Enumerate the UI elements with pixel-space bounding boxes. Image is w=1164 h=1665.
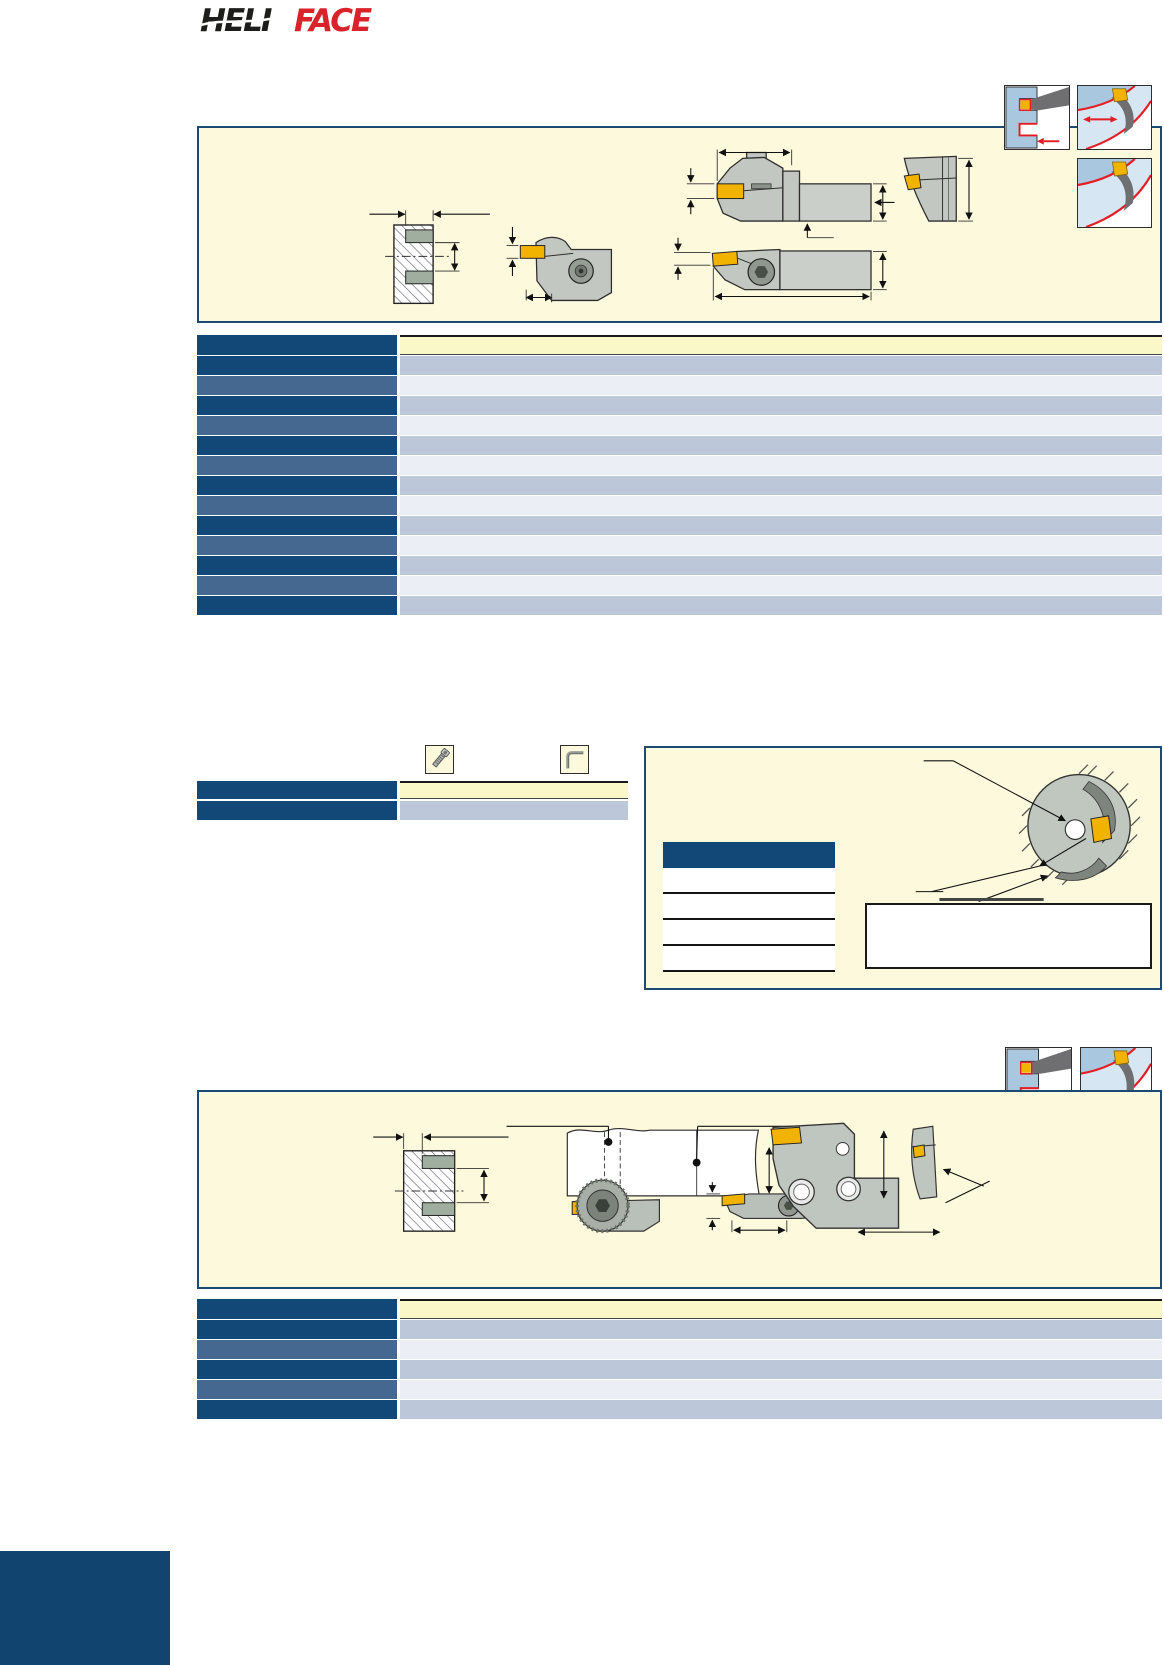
hex-key-icon xyxy=(560,745,589,774)
table-row xyxy=(197,1380,1162,1399)
cutting-data-table xyxy=(663,842,835,972)
annotation-box xyxy=(865,903,1152,969)
row-label-cell xyxy=(197,456,397,475)
table-row xyxy=(197,801,628,820)
footer-page-tab xyxy=(0,1551,170,1665)
row-value-cell xyxy=(400,476,1162,495)
face-groove-cross-section-icon xyxy=(1004,85,1070,150)
main-table-header-value-cell xyxy=(400,335,1162,355)
table-row xyxy=(197,436,1162,455)
row-value-cell xyxy=(400,1340,1162,1359)
table-row xyxy=(197,456,1162,475)
callout-dot xyxy=(693,1159,701,1167)
row-value-cell xyxy=(400,1380,1162,1399)
table-row xyxy=(197,536,1162,555)
row-value-cell xyxy=(400,436,1162,455)
bottom-dimension-table xyxy=(197,1299,1162,1420)
spare-parts-header-label-cell xyxy=(197,781,397,799)
row-label-cell xyxy=(197,1400,397,1419)
spare-parts-table xyxy=(197,781,628,821)
row-label-cell xyxy=(197,396,397,415)
table-row xyxy=(197,1340,1162,1359)
table-row xyxy=(197,376,1162,395)
row-value-cell xyxy=(400,396,1162,415)
table-row xyxy=(663,894,835,920)
carbide-insert xyxy=(712,251,737,266)
bottom-table-header-label-cell xyxy=(197,1299,397,1319)
top-drawing-panel xyxy=(197,126,1162,323)
row-label-cell xyxy=(197,536,397,555)
table-row xyxy=(197,496,1162,515)
bottom-tool-drawings xyxy=(199,1092,1160,1287)
carbide-insert xyxy=(771,1127,801,1145)
bottom-table-body xyxy=(197,1320,1162,1419)
bottom-table-header-value-cell xyxy=(400,1299,1162,1319)
spare-parts-table-body xyxy=(197,801,628,820)
carbide-insert xyxy=(904,174,921,190)
axial-feed-application-icon xyxy=(1077,158,1152,228)
logo-face-text: FACE xyxy=(294,3,372,38)
row-label-cell xyxy=(197,596,397,615)
row-value-cell xyxy=(400,496,1162,515)
carbide-insert xyxy=(722,1194,745,1206)
row-value-cell xyxy=(400,536,1162,555)
carbide-insert xyxy=(520,246,544,259)
bottom-table-header xyxy=(197,1299,1162,1319)
curved-insert-application-icon xyxy=(1077,85,1152,150)
spare-parts-header-value-cell xyxy=(400,781,628,799)
row-label-cell xyxy=(197,516,397,535)
workpiece-section xyxy=(373,1133,508,1231)
cutting-data-table-body xyxy=(663,868,835,972)
curved-blade-front-view xyxy=(904,156,973,221)
blade-side-view xyxy=(912,1126,990,1202)
carbide-insert xyxy=(913,1145,925,1158)
row-value-cell xyxy=(400,556,1162,575)
small-tool-side-view xyxy=(507,227,612,302)
main-table-body xyxy=(197,356,1162,615)
table-row xyxy=(197,416,1162,435)
row-value-cell xyxy=(400,356,1162,375)
row-label-cell xyxy=(197,356,397,375)
row-label-cell xyxy=(197,1360,397,1379)
row-value-cell xyxy=(400,596,1162,615)
carbide-insert xyxy=(717,184,743,199)
row-value-cell xyxy=(400,416,1162,435)
table-row xyxy=(197,1360,1162,1379)
locating-pin xyxy=(836,1142,849,1155)
row-label-cell xyxy=(197,576,397,595)
table-row xyxy=(197,476,1162,495)
row-label-cell xyxy=(197,496,397,515)
row-label-cell xyxy=(197,1320,397,1339)
bottom-drawing-panel xyxy=(197,1090,1162,1289)
row-value-cell xyxy=(400,801,628,820)
table-row xyxy=(197,576,1162,595)
carbide-insert xyxy=(1091,816,1112,843)
main-table-header-label-cell xyxy=(197,335,397,355)
row-label-cell xyxy=(197,376,397,395)
table-row xyxy=(663,946,835,972)
machining-diagram-panel xyxy=(644,746,1162,990)
row-value-cell xyxy=(400,1360,1162,1379)
catalog-page: HELI FACE xyxy=(0,0,1164,1665)
spare-parts-table-header xyxy=(197,781,628,799)
table-row xyxy=(663,868,835,894)
row-value-cell xyxy=(400,456,1162,475)
workpiece-section xyxy=(369,210,490,303)
row-value-cell xyxy=(400,1400,1162,1419)
table-row xyxy=(663,920,835,946)
table-row xyxy=(197,396,1162,415)
table-row xyxy=(197,1320,1162,1339)
table-row xyxy=(197,516,1162,535)
row-label-cell xyxy=(197,801,397,820)
row-value-cell xyxy=(400,376,1162,395)
table-row xyxy=(197,556,1162,575)
row-label-cell xyxy=(197,1340,397,1359)
row-label-cell xyxy=(197,416,397,435)
row-label-cell xyxy=(197,436,397,455)
row-label-cell xyxy=(197,1380,397,1399)
top-tool-drawings xyxy=(199,128,1160,321)
brand-logo: HELI FACE xyxy=(198,2,413,38)
row-label-cell xyxy=(197,556,397,575)
cutting-data-table-header xyxy=(663,842,835,868)
row-value-cell xyxy=(400,576,1162,595)
clamp-screw-icon xyxy=(425,745,454,774)
main-table-header xyxy=(197,335,1162,355)
row-label-cell xyxy=(197,476,397,495)
table-row xyxy=(197,596,1162,615)
callout-dot xyxy=(605,1138,613,1146)
table-row xyxy=(197,356,1162,375)
row-value-cell xyxy=(400,516,1162,535)
table-row xyxy=(197,1400,1162,1419)
large-tool-top-view xyxy=(674,238,887,301)
main-dimension-table xyxy=(197,335,1162,616)
row-value-cell xyxy=(400,1320,1162,1339)
center-hole xyxy=(1065,820,1085,840)
large-tool-side-view xyxy=(687,150,895,238)
